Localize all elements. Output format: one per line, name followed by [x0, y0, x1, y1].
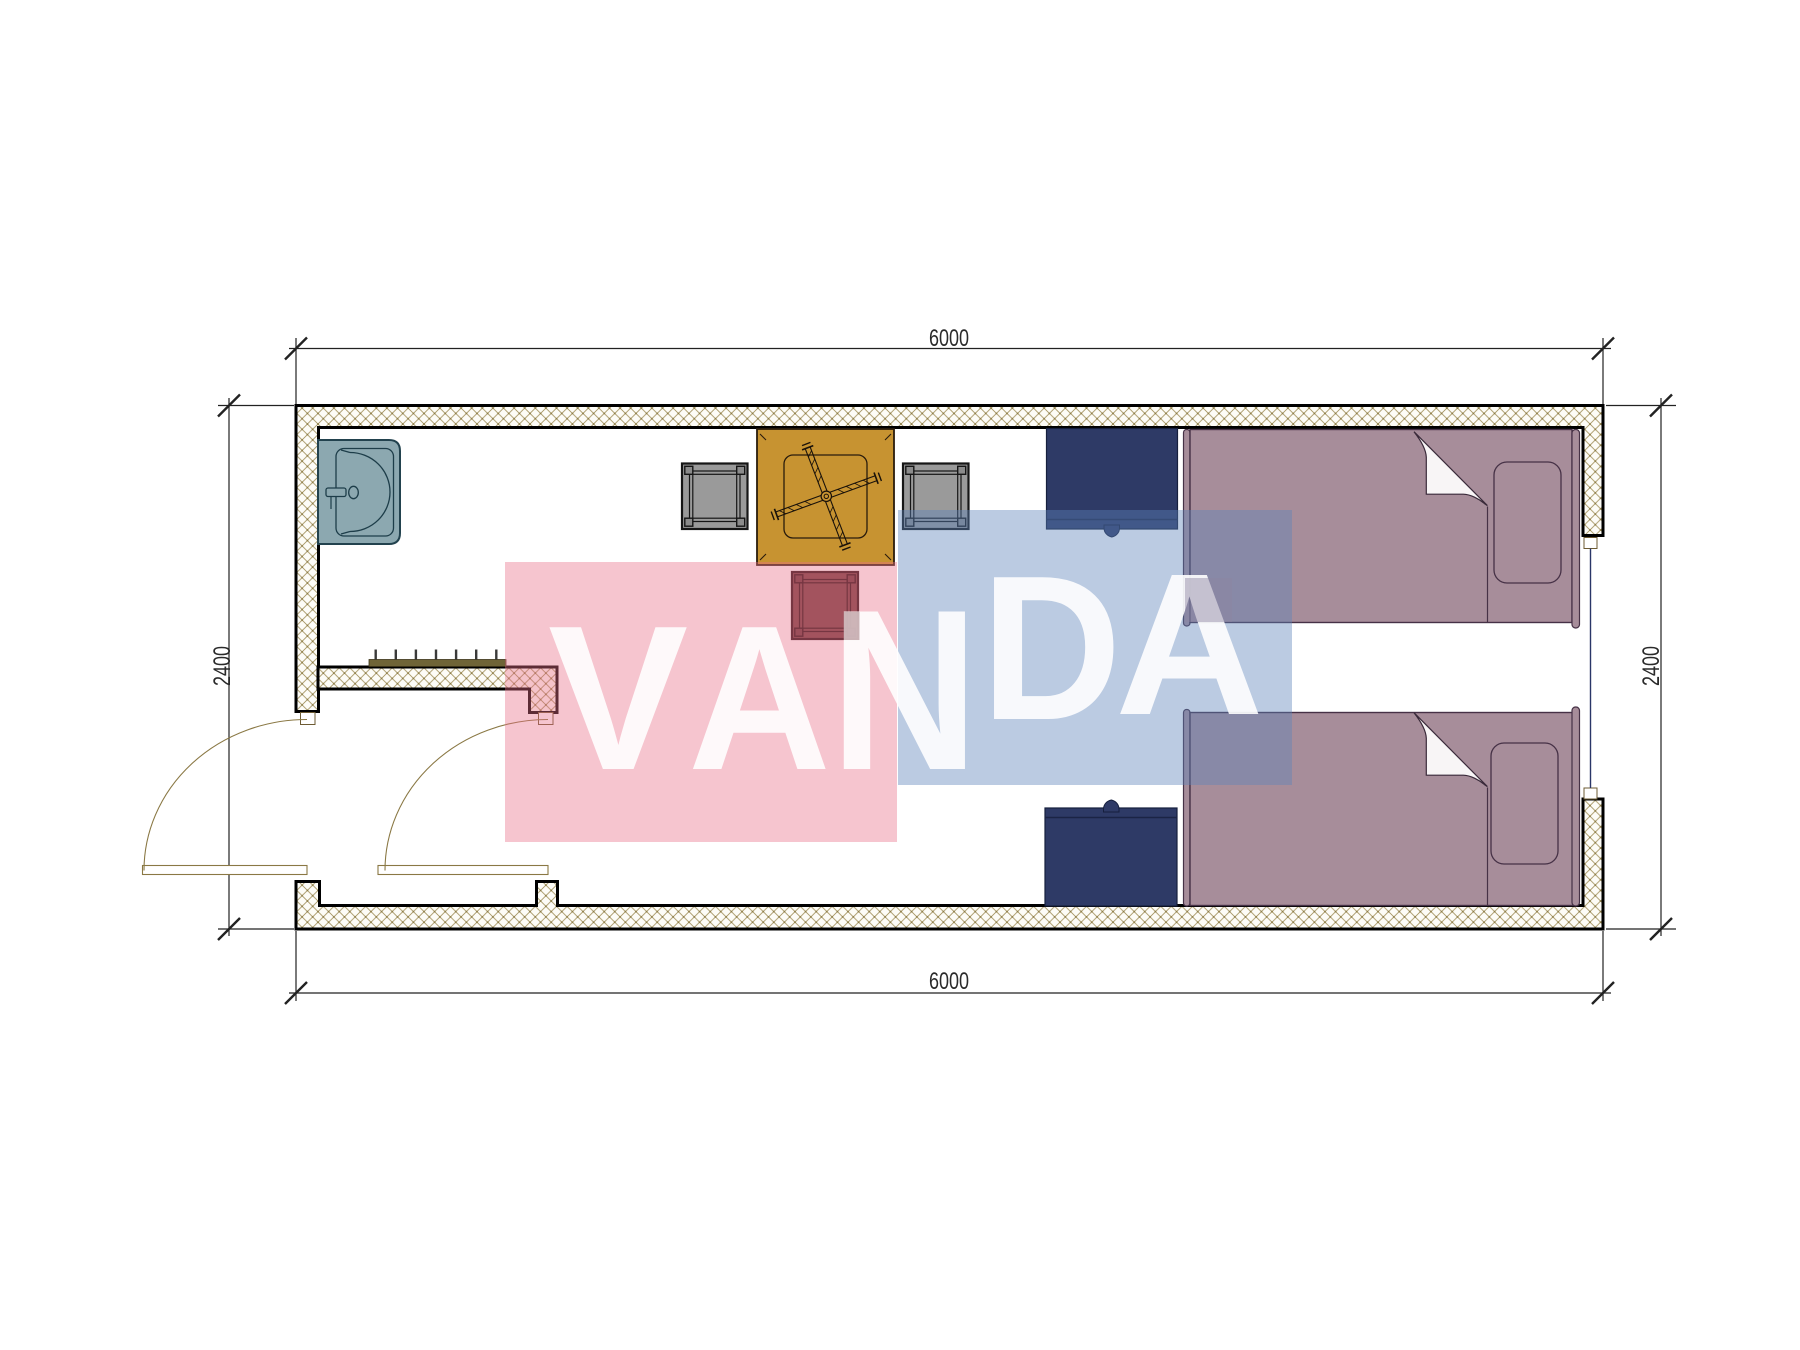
- svg-text:A: A: [688, 582, 831, 813]
- svg-text:A: A: [1115, 532, 1264, 758]
- svg-text:D: D: [981, 534, 1122, 763]
- svg-text:6000: 6000: [929, 326, 969, 352]
- svg-text:N: N: [830, 563, 979, 818]
- svg-text:6000: 6000: [929, 969, 969, 995]
- svg-text:2400: 2400: [1639, 646, 1665, 686]
- svg-text:V: V: [548, 584, 688, 814]
- svg-text:2400: 2400: [210, 646, 236, 686]
